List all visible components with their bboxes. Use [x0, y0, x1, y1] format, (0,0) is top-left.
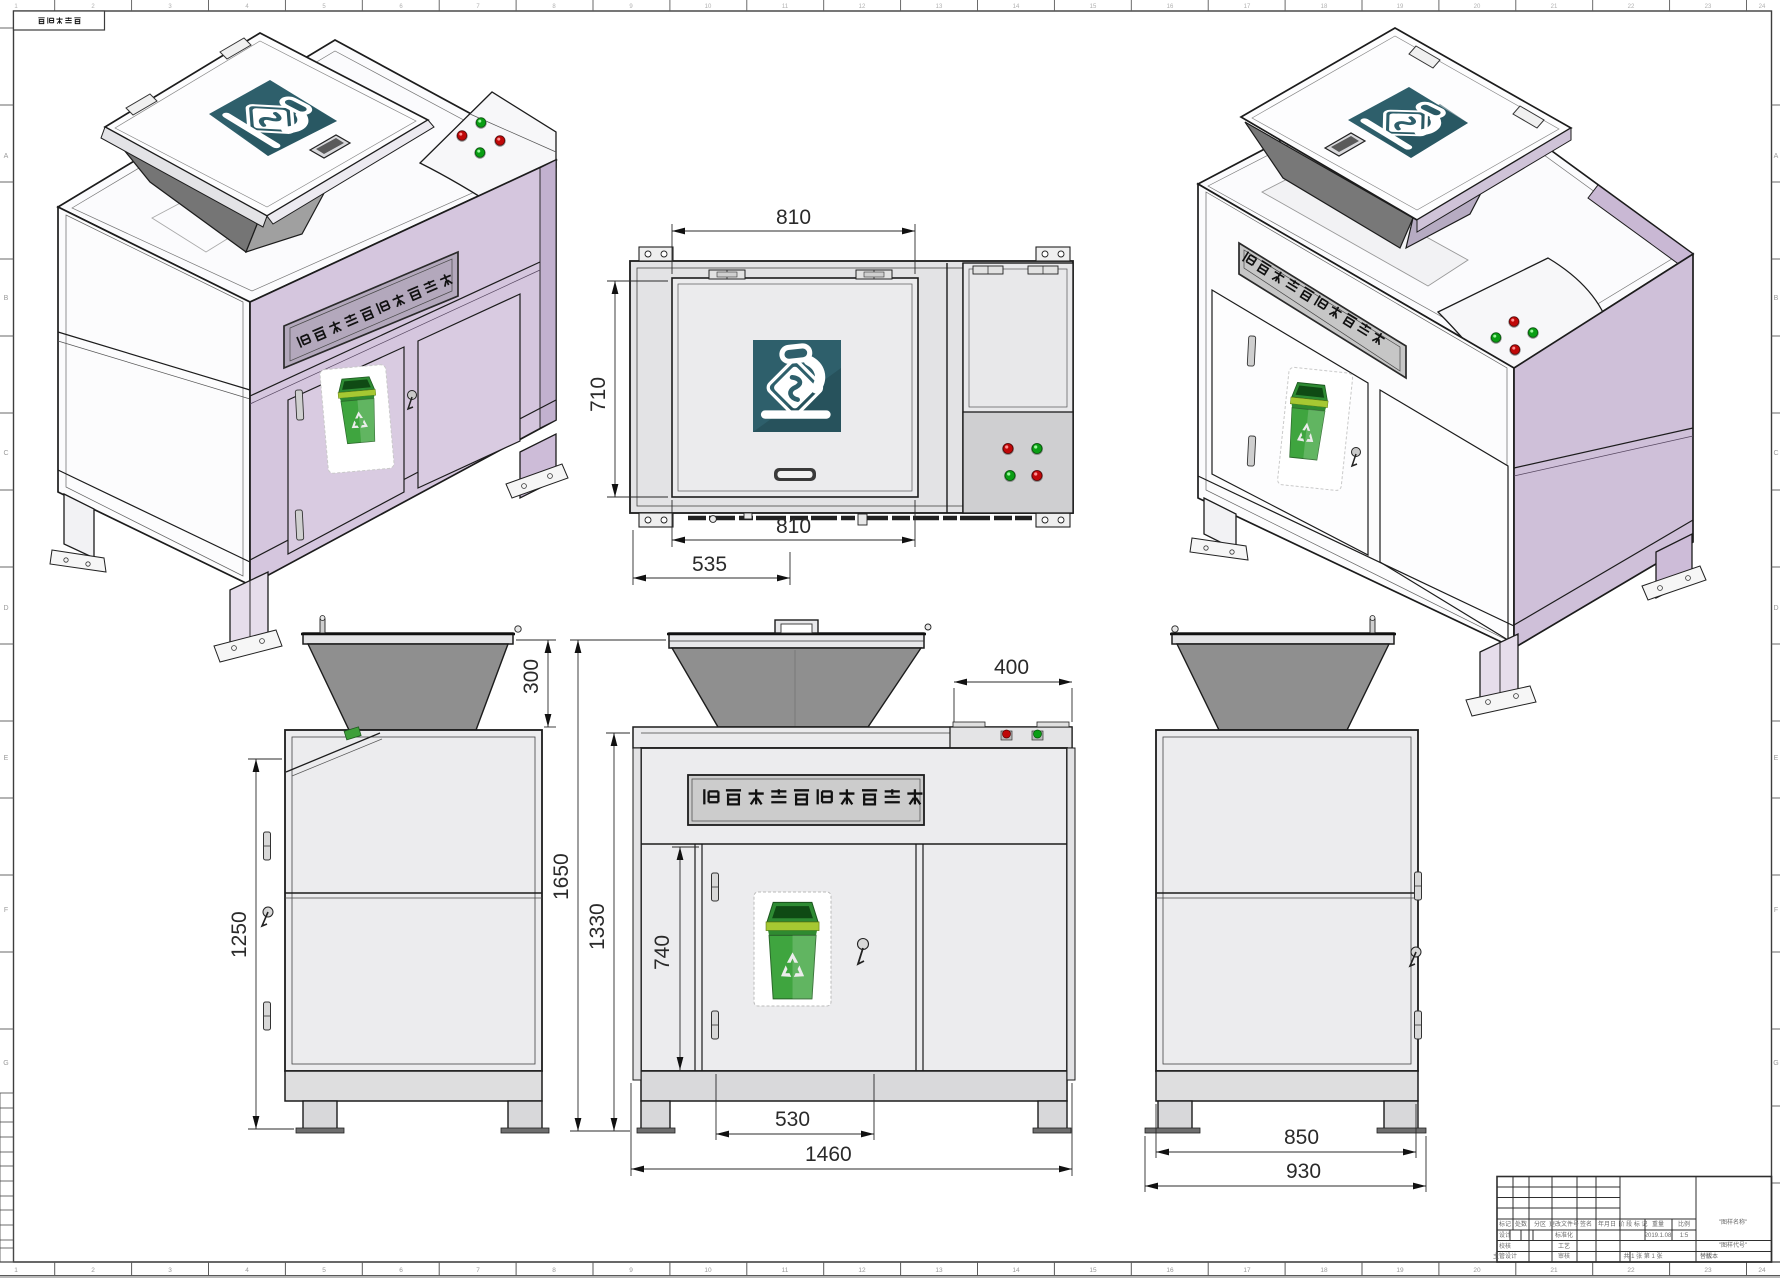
- svg-text:9: 9: [629, 1267, 633, 1274]
- svg-text:13: 13: [935, 1267, 943, 1274]
- svg-text:标记: 标记: [1499, 1220, 1511, 1228]
- svg-text:主管设计: 主管设计: [1493, 1252, 1517, 1260]
- svg-text:14: 14: [1012, 1267, 1020, 1274]
- svg-text:20: 20: [1474, 4, 1481, 10]
- svg-text:14: 14: [1013, 4, 1020, 10]
- svg-text:8: 8: [552, 1267, 556, 1274]
- svg-text:2019.1.08: 2019.1.08: [1645, 1233, 1672, 1239]
- svg-text:10: 10: [705, 4, 712, 10]
- svg-text:3: 3: [168, 1267, 172, 1274]
- svg-text:20: 20: [1473, 1267, 1481, 1274]
- svg-text:1330: 1330: [586, 903, 609, 950]
- svg-text:4: 4: [245, 1267, 249, 1274]
- svg-text:1460: 1460: [805, 1143, 852, 1166]
- svg-text:G: G: [1773, 1060, 1778, 1067]
- svg-text:处数: 处数: [1515, 1220, 1527, 1228]
- svg-text:更改文件号: 更改文件号: [1549, 1220, 1579, 1228]
- svg-text:F: F: [4, 907, 8, 914]
- svg-text:810: 810: [776, 515, 811, 538]
- svg-text:16: 16: [1167, 4, 1174, 10]
- svg-text:22: 22: [1627, 1267, 1635, 1274]
- svg-text:17: 17: [1243, 1267, 1251, 1274]
- svg-text:A: A: [4, 153, 9, 160]
- svg-text:1:5: 1:5: [1680, 1233, 1689, 1239]
- svg-text:400: 400: [994, 656, 1029, 679]
- svg-text:6: 6: [399, 1267, 403, 1274]
- svg-text:校核: 校核: [1499, 1242, 1511, 1250]
- svg-text:19: 19: [1397, 4, 1404, 10]
- svg-text:C: C: [1773, 450, 1778, 457]
- svg-text:18: 18: [1320, 1267, 1328, 1274]
- svg-text:22: 22: [1628, 4, 1635, 10]
- svg-text:A: A: [1774, 153, 1779, 160]
- svg-text:2: 2: [91, 1267, 95, 1274]
- svg-text:替代: 替代: [1700, 1252, 1712, 1260]
- svg-text:D: D: [1773, 605, 1778, 612]
- svg-text:重量: 重量: [1652, 1220, 1664, 1228]
- svg-text:1: 1: [14, 1267, 18, 1274]
- svg-text:共 1 张 第 1 张: 共 1 张 第 1 张: [1623, 1252, 1662, 1260]
- svg-text:530: 530: [775, 1108, 810, 1131]
- svg-text:比例: 比例: [1678, 1220, 1690, 1228]
- svg-text:年月日: 年月日: [1598, 1220, 1616, 1228]
- svg-text:E: E: [1774, 755, 1779, 762]
- svg-text:710: 710: [587, 377, 610, 412]
- svg-text:1250: 1250: [228, 911, 251, 958]
- svg-text:21: 21: [1551, 4, 1558, 10]
- svg-text:11: 11: [782, 1267, 789, 1274]
- svg-text:300: 300: [520, 659, 543, 694]
- svg-text:"图样代号": "图样代号": [1719, 1241, 1747, 1249]
- svg-text:B: B: [1774, 295, 1779, 302]
- svg-text:535: 535: [692, 553, 727, 576]
- svg-text:13: 13: [936, 4, 943, 10]
- svg-text:16: 16: [1166, 1267, 1174, 1274]
- svg-text:审核: 审核: [1558, 1252, 1570, 1260]
- svg-text:"图样名称": "图样名称": [1719, 1218, 1747, 1226]
- svg-text:工艺: 工艺: [1558, 1242, 1570, 1250]
- svg-text:21: 21: [1550, 1267, 1558, 1274]
- svg-text:23: 23: [1705, 4, 1712, 10]
- svg-text:15: 15: [1089, 1267, 1097, 1274]
- svg-text:C: C: [3, 450, 8, 457]
- svg-text:24: 24: [1759, 4, 1766, 10]
- svg-text:12: 12: [858, 1267, 866, 1274]
- svg-text:7: 7: [476, 1267, 480, 1274]
- svg-text:19: 19: [1396, 1267, 1404, 1274]
- svg-text:标准化: 标准化: [1555, 1231, 1573, 1239]
- svg-text:D: D: [3, 605, 8, 612]
- svg-text:810: 810: [776, 206, 811, 229]
- svg-text:B: B: [4, 295, 9, 302]
- svg-text:1650: 1650: [550, 853, 573, 900]
- svg-text:11: 11: [782, 4, 789, 10]
- svg-text:12: 12: [859, 4, 866, 10]
- svg-text:850: 850: [1284, 1126, 1319, 1149]
- svg-text:23: 23: [1704, 1267, 1712, 1274]
- svg-text:24: 24: [1758, 1267, 1766, 1274]
- svg-text:15: 15: [1090, 4, 1097, 10]
- svg-text:签名: 签名: [1580, 1220, 1592, 1228]
- svg-text:G: G: [3, 1060, 8, 1067]
- svg-text:5: 5: [322, 1267, 326, 1274]
- svg-text:设计: 设计: [1499, 1231, 1511, 1239]
- svg-text:阶 段 标 记: 阶 段 标 记: [1618, 1220, 1647, 1228]
- svg-text:F: F: [1774, 907, 1778, 914]
- svg-text:17: 17: [1244, 4, 1251, 10]
- svg-text:E: E: [4, 755, 9, 762]
- svg-text:930: 930: [1286, 1160, 1321, 1183]
- svg-text:740: 740: [651, 935, 674, 970]
- svg-text:分区: 分区: [1534, 1220, 1546, 1228]
- svg-text:10: 10: [704, 1267, 712, 1274]
- svg-text:18: 18: [1321, 4, 1328, 10]
